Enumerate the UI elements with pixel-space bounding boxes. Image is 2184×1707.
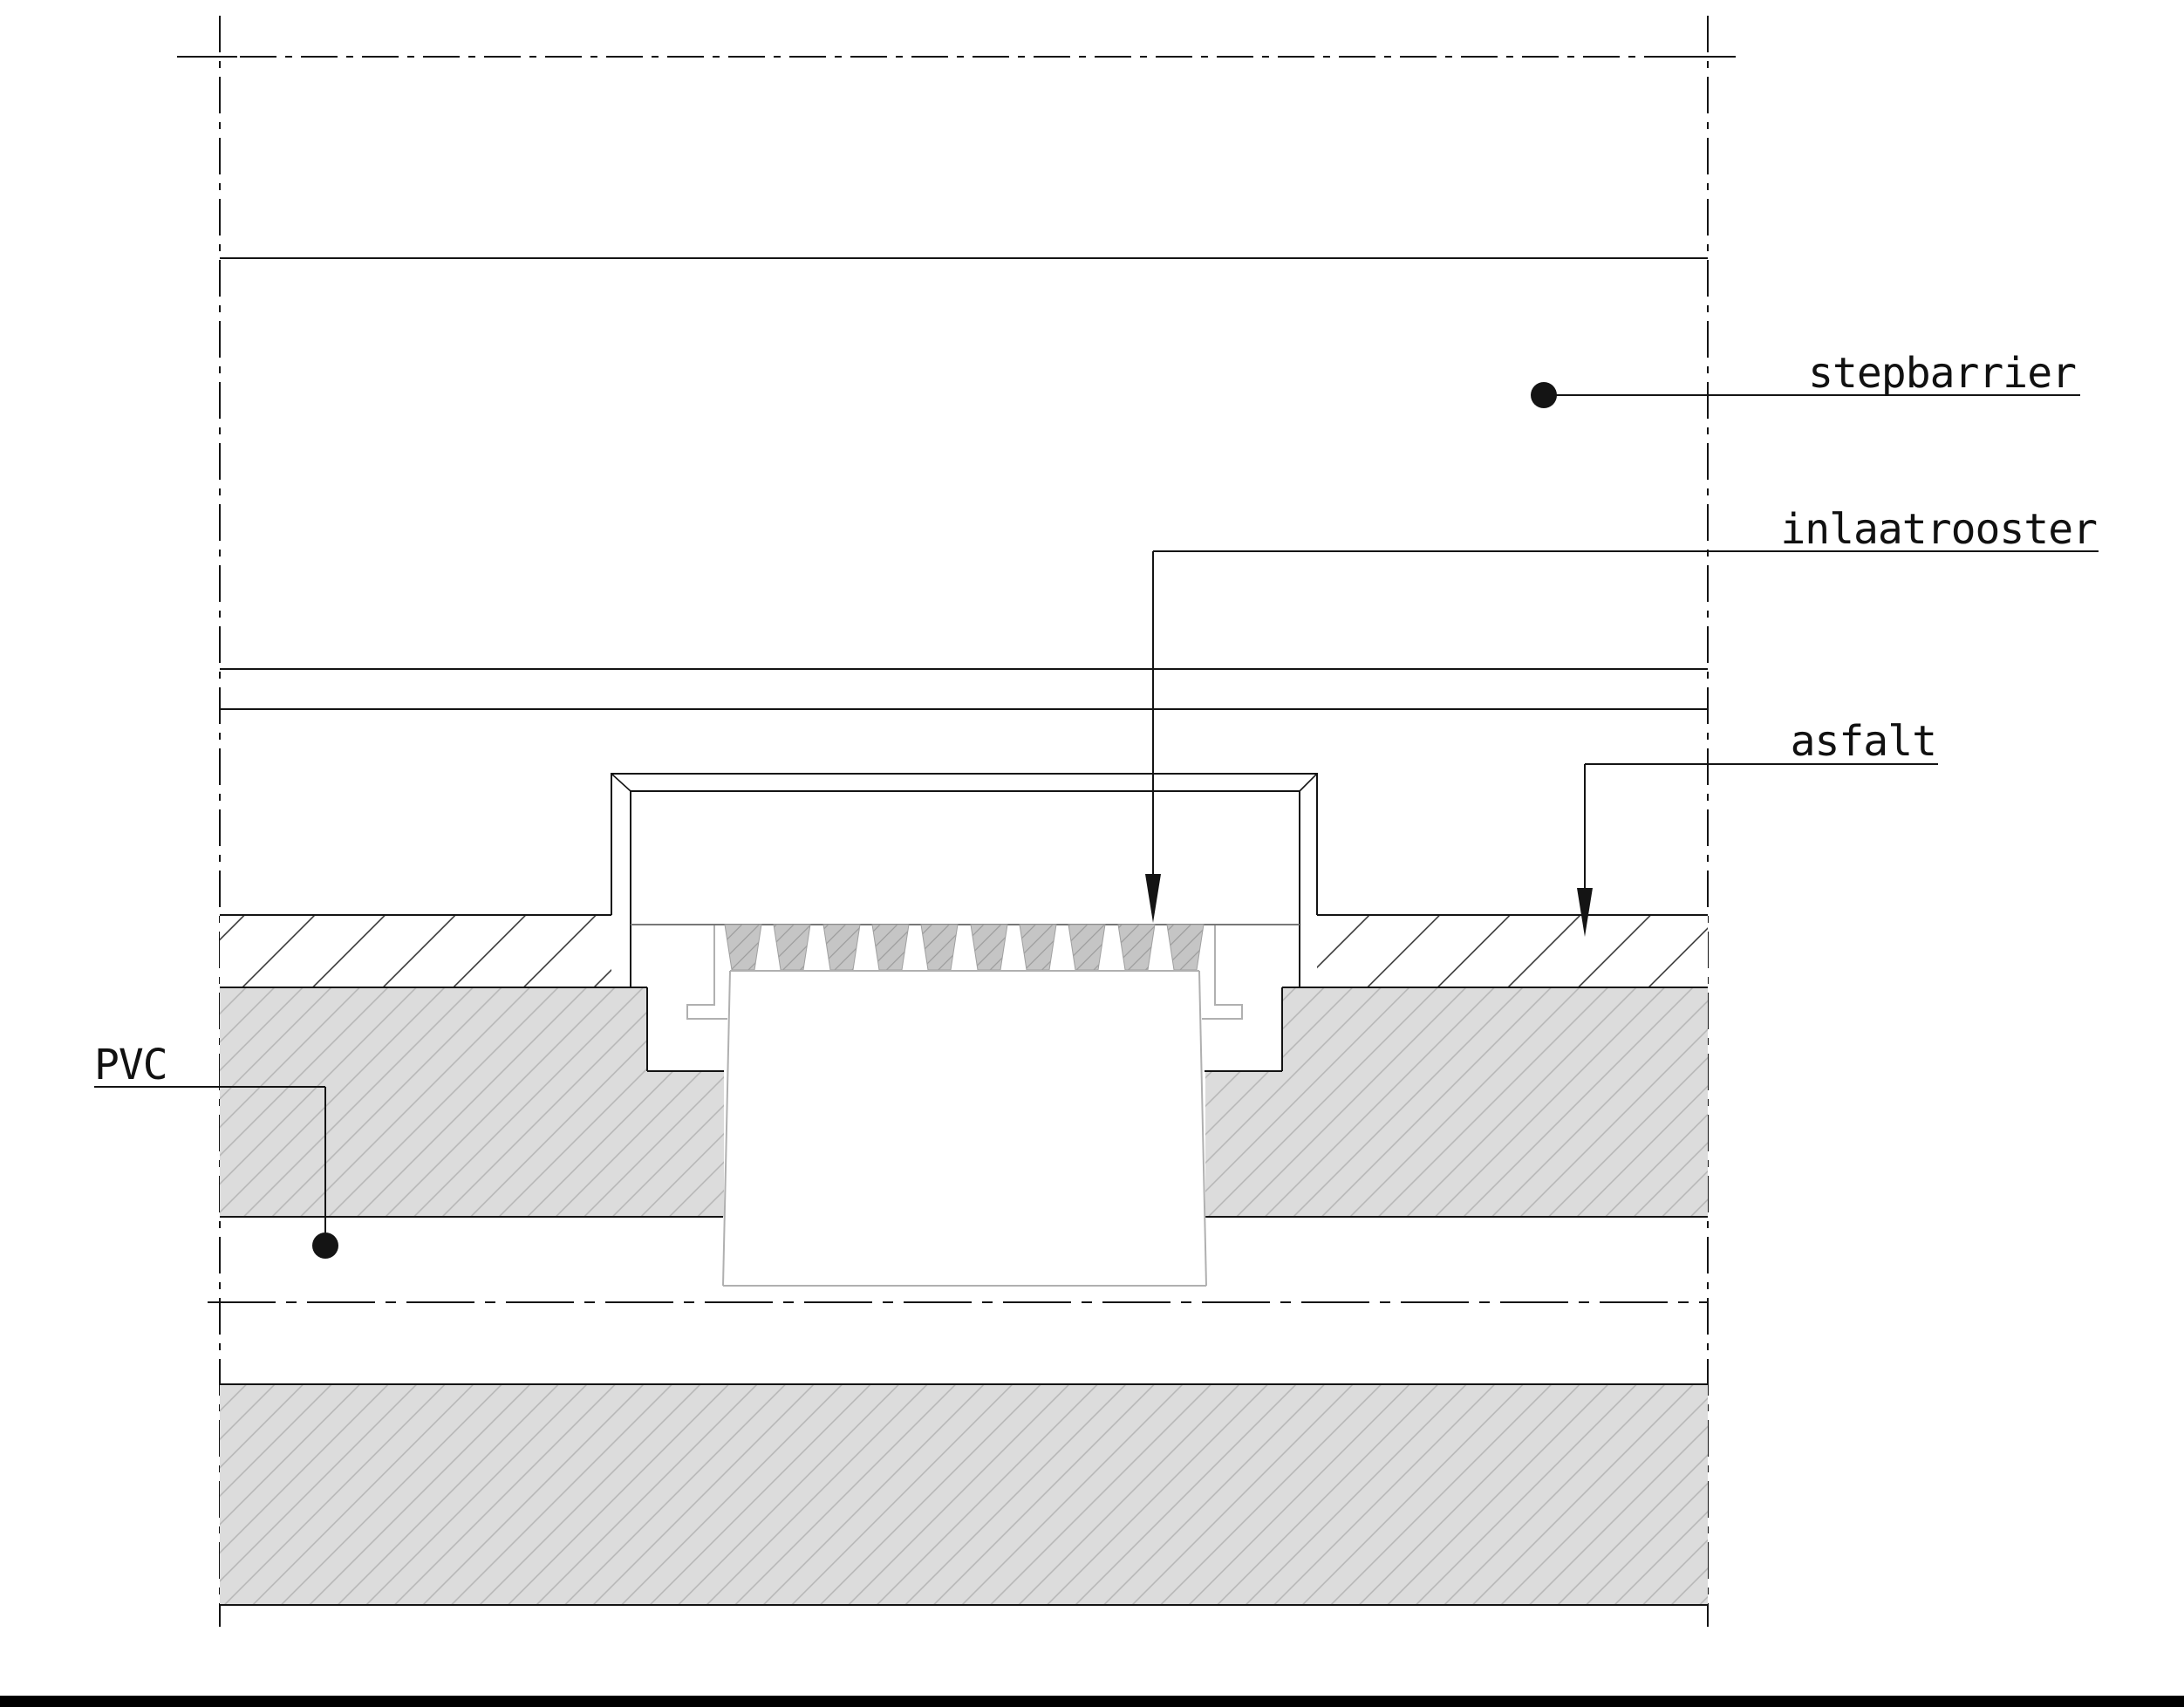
subgrade-upper: [220, 987, 1708, 1217]
grate-tooth: [971, 925, 1007, 970]
subgrade-upper-right-fill: [1205, 987, 1708, 1217]
label-asfalt: asfalt: [1791, 717, 1936, 766]
frame-bevel-left: [611, 774, 631, 791]
leader-dot: [312, 1232, 338, 1259]
subgrade-lower-fill: [220, 1384, 1708, 1605]
surface-lines: [220, 258, 1708, 709]
grate-tooth: [1167, 925, 1204, 970]
gully-pot: [687, 925, 1242, 1286]
asphalt-layer: [220, 915, 1708, 987]
grate-tooth: [1068, 925, 1105, 970]
grate-tooth: [1118, 925, 1155, 970]
bottom-border-bar: [0, 1696, 2184, 1707]
grate-tooth: [774, 925, 810, 970]
leader-arrowhead: [1145, 874, 1161, 923]
frame-seat-foot-left: [687, 925, 727, 1019]
grate-tooth: [1020, 925, 1056, 970]
leader-asfalt: asfalt: [1577, 717, 1938, 937]
detail-drawing: stepbarrier inlaatrooster asfalt PVC: [0, 0, 2184, 1707]
frame-bevel-right: [1300, 774, 1317, 791]
subgrade-upper-left-fill: [220, 987, 724, 1217]
leader-inlaatrooster: inlaatrooster: [1145, 505, 2099, 923]
leader-stepbarrier: stepbarrier: [1531, 349, 2080, 408]
frame-seat-foot-right: [1202, 925, 1242, 1019]
label-pvc: PVC: [94, 1041, 167, 1089]
grate-tooth: [921, 925, 958, 970]
leader-dot: [1531, 382, 1557, 408]
label-stepbarrier: stepbarrier: [1808, 349, 2076, 398]
gully-frame: [611, 774, 1317, 987]
grate-tooth: [823, 925, 860, 970]
asphalt-hatch-right: [1317, 915, 1708, 987]
asphalt-hatch-left: [220, 915, 611, 987]
grate-tooth: [872, 925, 909, 970]
grate-teeth: [631, 925, 1300, 971]
frame-outer-outline: [611, 774, 1317, 915]
drawing-canvas: stepbarrier inlaatrooster asfalt PVC: [0, 0, 2184, 1707]
label-inlaatrooster: inlaatrooster: [1780, 505, 2097, 554]
subgrade-lower: [220, 1384, 1708, 1605]
grate-tooth: [725, 925, 761, 970]
